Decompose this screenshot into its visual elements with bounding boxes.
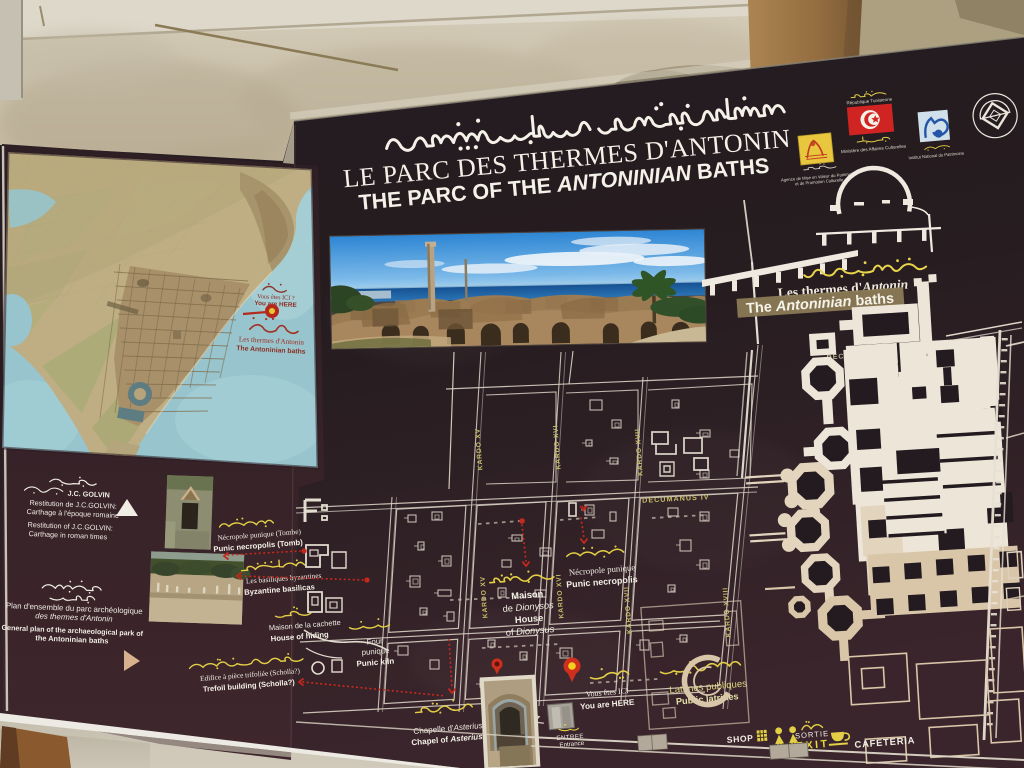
svg-text:SHOP: SHOP (726, 733, 753, 745)
svg-text:J.C. GOLVIN: J.C. GOLVIN (67, 489, 110, 500)
svg-text:Four: Four (366, 636, 383, 646)
